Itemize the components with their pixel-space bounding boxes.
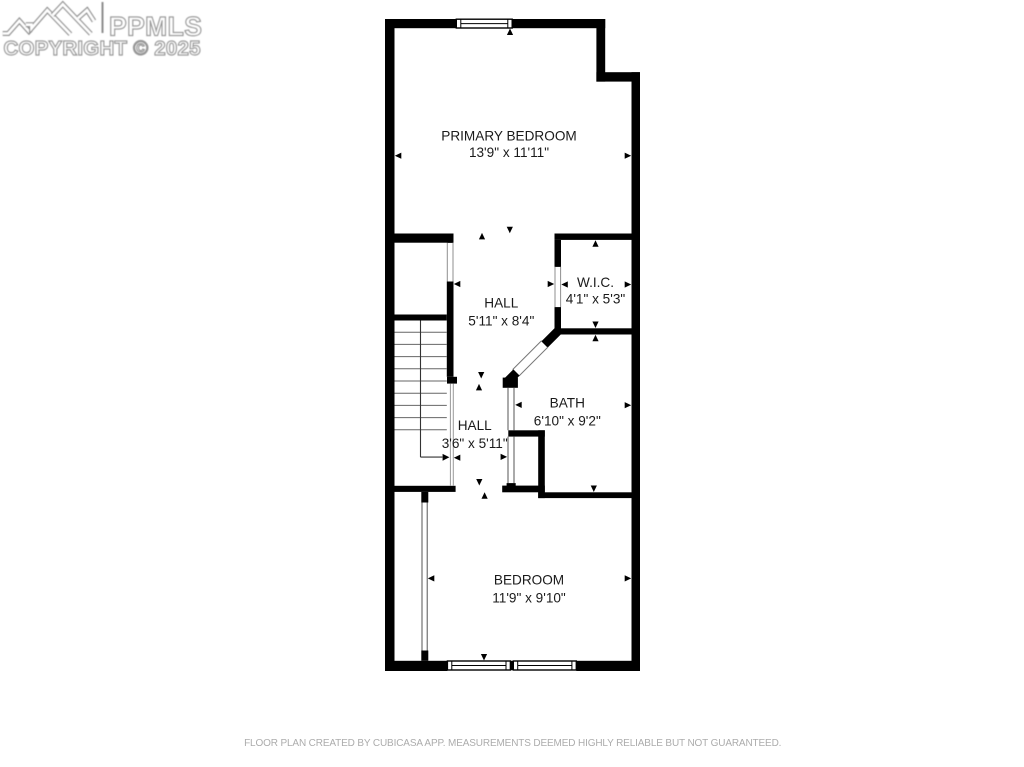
svg-text:3'6" x 5'11": 3'6" x 5'11" xyxy=(442,436,508,451)
svg-text:HALL: HALL xyxy=(458,418,492,433)
svg-text:COPYRIGHT © 2025: COPYRIGHT © 2025 xyxy=(4,37,201,60)
svg-text:5'11" x 8'4": 5'11" x 8'4" xyxy=(468,313,534,328)
svg-text:4'1" x 5'3": 4'1" x 5'3" xyxy=(566,292,626,307)
svg-text:W.I.C.: W.I.C. xyxy=(577,275,614,290)
svg-text:FLOOR PLAN CREATED BY CUBICASA: FLOOR PLAN CREATED BY CUBICASA APP. MEAS… xyxy=(244,738,781,749)
svg-text:6'10" x 9'2": 6'10" x 9'2" xyxy=(534,413,601,428)
svg-text:13'9" x 11'11": 13'9" x 11'11" xyxy=(469,145,549,160)
svg-text:11'9" x 9'10": 11'9" x 9'10" xyxy=(492,591,566,606)
svg-text:HALL: HALL xyxy=(484,296,518,311)
svg-text:BATH: BATH xyxy=(550,396,585,411)
svg-text:BEDROOM: BEDROOM xyxy=(494,573,564,588)
svg-text:PRIMARY BEDROOM: PRIMARY BEDROOM xyxy=(441,129,576,144)
